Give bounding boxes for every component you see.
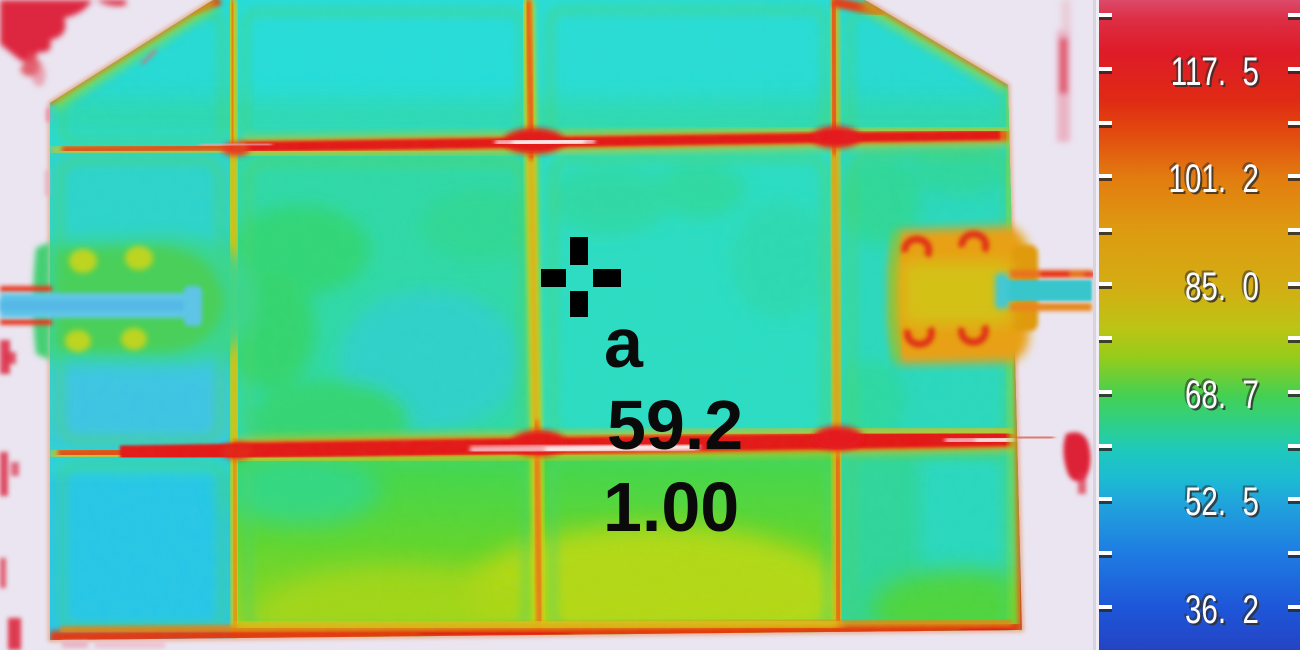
svg-text:a: a: [604, 304, 644, 382]
svg-text:85. 0: 85. 0: [1185, 265, 1259, 309]
svg-text:36. 2: 36. 2: [1185, 588, 1259, 632]
svg-text:52. 5: 52. 5: [1185, 480, 1259, 524]
svg-text:101. 2: 101. 2: [1169, 157, 1259, 201]
svg-text:1.00: 1.00: [603, 468, 739, 546]
svg-text:117. 5: 117. 5: [1171, 50, 1259, 94]
svg-text:59.2: 59.2: [607, 386, 743, 464]
svg-text:68. 7: 68. 7: [1185, 373, 1259, 417]
